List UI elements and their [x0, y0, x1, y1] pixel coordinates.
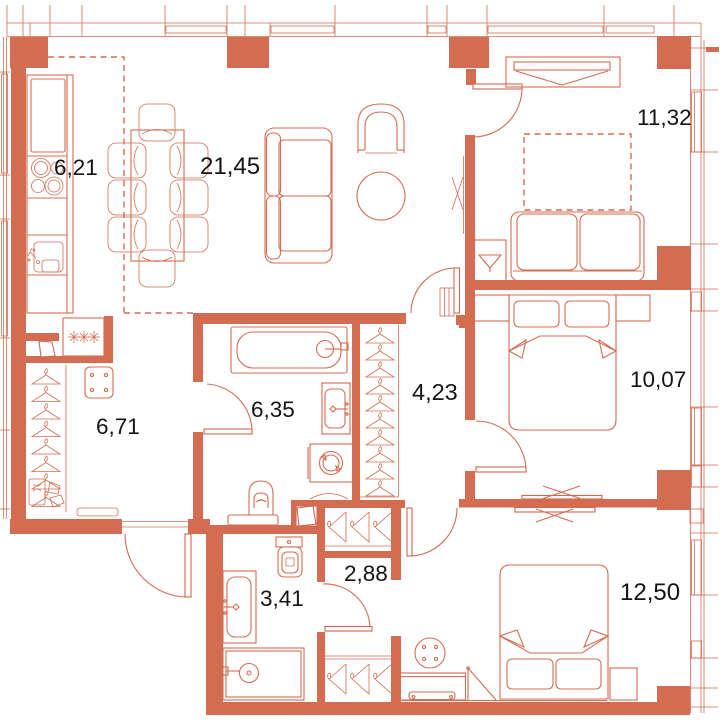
- svg-text:3,41: 3,41: [260, 586, 304, 611]
- svg-text:6,21: 6,21: [54, 155, 98, 180]
- svg-text:6,35: 6,35: [251, 397, 295, 422]
- svg-text:11,32: 11,32: [637, 105, 692, 130]
- svg-text:21,45: 21,45: [200, 153, 260, 180]
- svg-text:12,50: 12,50: [620, 579, 680, 606]
- svg-text:6,71: 6,71: [96, 414, 140, 439]
- svg-text:4,23: 4,23: [412, 379, 458, 405]
- svg-text:10,07: 10,07: [630, 367, 686, 392]
- svg-text:2,88: 2,88: [344, 561, 388, 586]
